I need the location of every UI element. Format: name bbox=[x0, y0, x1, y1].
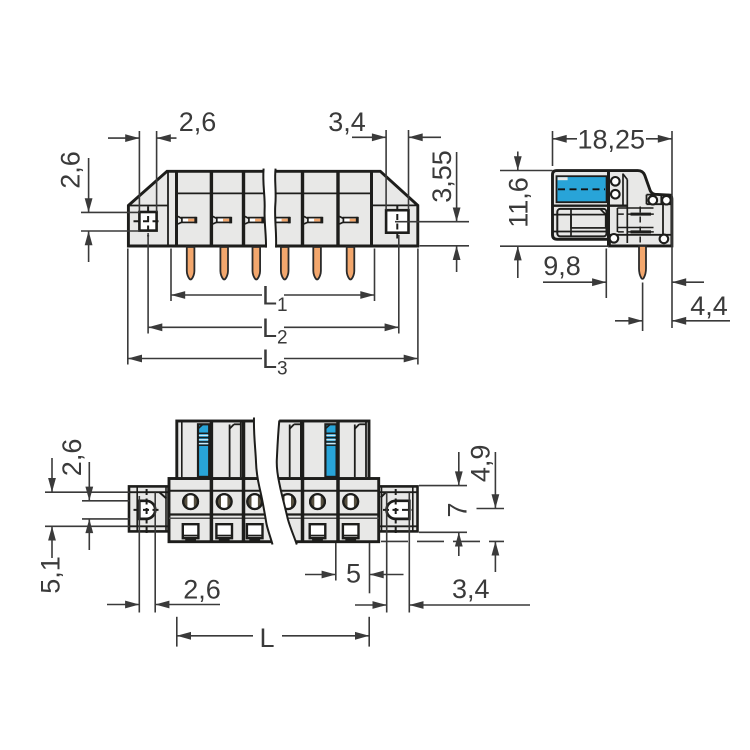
svg-text:5,1: 5,1 bbox=[36, 556, 66, 594]
svg-text:3,55: 3,55 bbox=[427, 150, 457, 203]
svg-text:4,4: 4,4 bbox=[690, 291, 728, 321]
svg-text:11,6: 11,6 bbox=[504, 177, 534, 228]
svg-text:3,4: 3,4 bbox=[452, 574, 490, 604]
svg-text:7: 7 bbox=[443, 502, 473, 517]
svg-text:2,6: 2,6 bbox=[179, 107, 217, 137]
svg-text:9,8: 9,8 bbox=[543, 251, 581, 281]
svg-text:2,6: 2,6 bbox=[183, 575, 221, 605]
svg-text:18,25: 18,25 bbox=[578, 125, 646, 155]
svg-text:L: L bbox=[259, 623, 274, 653]
svg-text:2,6: 2,6 bbox=[57, 439, 87, 477]
svg-text:4,9: 4,9 bbox=[466, 445, 496, 483]
svg-text:2,6: 2,6 bbox=[56, 151, 86, 189]
svg-text:5: 5 bbox=[346, 559, 361, 589]
svg-text:3,4: 3,4 bbox=[328, 107, 366, 137]
